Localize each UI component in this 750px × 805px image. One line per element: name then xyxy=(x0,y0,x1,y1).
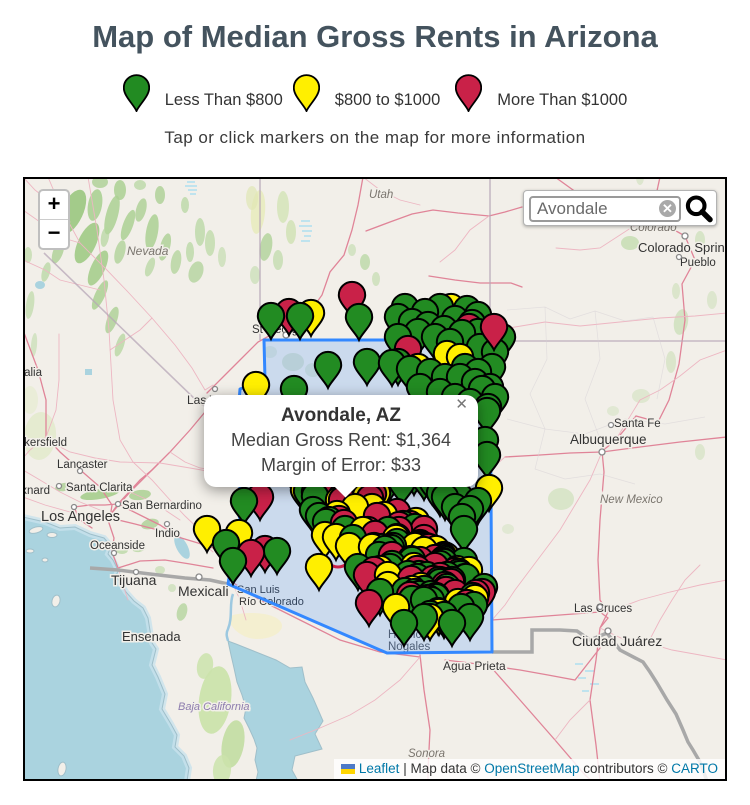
svg-text:Ciudad Juárez: Ciudad Juárez xyxy=(572,633,662,649)
svg-text:Mexicali: Mexicali xyxy=(178,583,229,599)
svg-text:Los Angeles: Los Angeles xyxy=(41,509,120,525)
svg-text:Oxnard: Oxnard xyxy=(25,485,50,497)
svg-text:Albuquerque: Albuquerque xyxy=(570,432,647,447)
svg-text:Nevada: Nevada xyxy=(127,244,169,258)
svg-text:Baja California: Baja California xyxy=(178,701,250,713)
svg-text:Tijuana: Tijuana xyxy=(111,572,157,588)
svg-text:Las Cruces: Las Cruces xyxy=(574,603,632,615)
svg-text:Bakersfield: Bakersfield xyxy=(25,437,67,449)
svg-text:San Bernardino: San Bernardino xyxy=(122,500,202,512)
svg-text:Colorado Springs: Colorado Springs xyxy=(638,240,725,255)
svg-text:Pueblo: Pueblo xyxy=(680,257,716,269)
svg-text:Santa Fe: Santa Fe xyxy=(614,418,661,430)
svg-text:Utah: Utah xyxy=(369,189,393,201)
svg-text:Indio: Indio xyxy=(155,528,180,540)
svg-text:Santa Clarita: Santa Clarita xyxy=(66,482,133,494)
svg-text:New Mexico: New Mexico xyxy=(600,494,663,506)
svg-text:Agua Prieta: Agua Prieta xyxy=(443,659,506,673)
svg-text:Oceanside: Oceanside xyxy=(90,540,145,552)
svg-text:Visalia: Visalia xyxy=(25,367,43,379)
svg-text:Ensenada: Ensenada xyxy=(122,629,181,644)
